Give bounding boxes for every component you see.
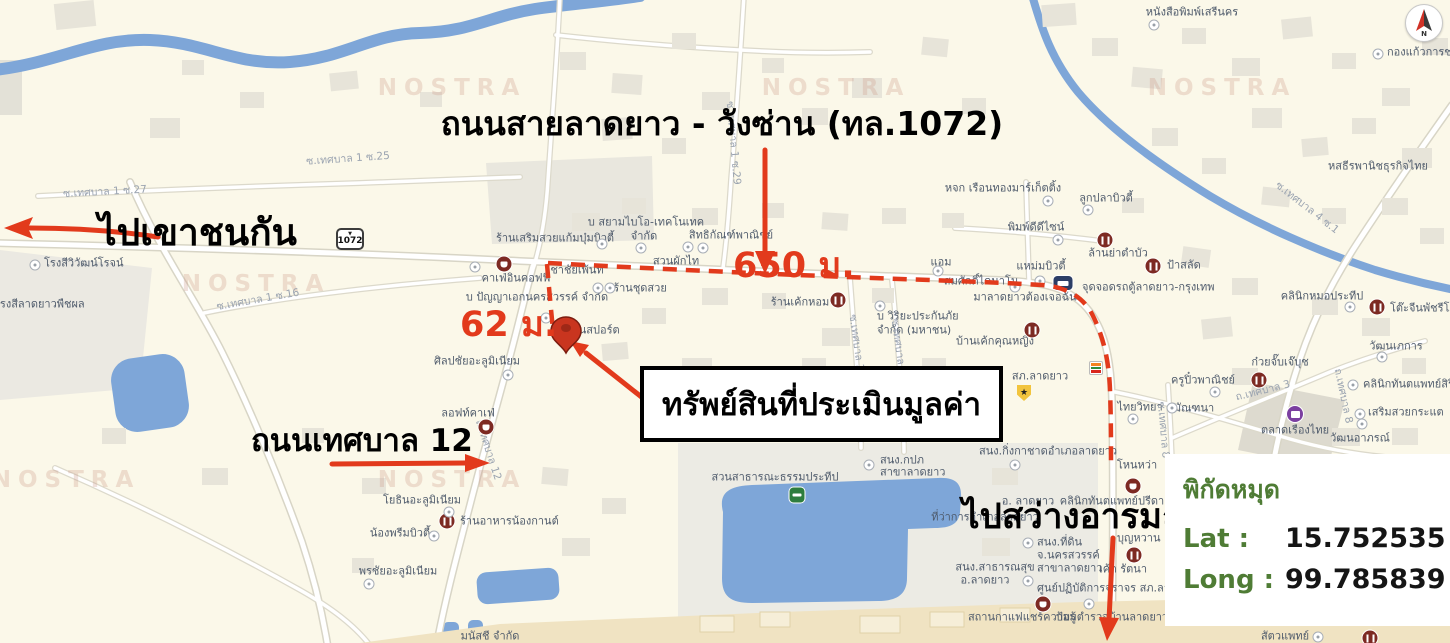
arrow-to-sawang-arom bbox=[1109, 538, 1113, 620]
restaurant-icon bbox=[1370, 300, 1385, 315]
dot-icon bbox=[1348, 380, 1359, 391]
poi-label: สถานกาแฟแชร์ความรู้ bbox=[968, 612, 1076, 623]
restaurant-icon bbox=[1252, 373, 1267, 388]
latitude-row: Lat : 15.752535 bbox=[1183, 523, 1450, 554]
poi-label: สวนสาธารณะธรรมประทีป bbox=[711, 472, 838, 483]
road-name-label: ซ.เทศบาล 8 bbox=[1155, 401, 1170, 458]
river bbox=[0, 0, 640, 70]
poi-label: สภ.ลาดยาว bbox=[1012, 371, 1068, 382]
poi-label: โรงสีลาดยาวพืชผล bbox=[0, 299, 85, 310]
poi-label: ตลาดเรืองไทย bbox=[1261, 425, 1329, 436]
poi-label: วัฒนอาภรณ์ bbox=[1330, 433, 1390, 444]
poi-label: เสริมสวยกระแต bbox=[1368, 407, 1444, 418]
dot-icon bbox=[864, 460, 875, 471]
dot-icon bbox=[698, 243, 709, 254]
poi-label: พิมพ์ดีดีไซน์ bbox=[1008, 222, 1065, 233]
nostra-watermark: NOSTRA bbox=[378, 467, 527, 493]
poi-label: สมศักดิ์ไดนาโม bbox=[944, 276, 1018, 287]
shop-icon bbox=[1287, 406, 1303, 422]
nostra-watermark: NOSTRA bbox=[1148, 75, 1297, 101]
coffee-icon bbox=[497, 257, 512, 272]
poi-label: จำกัด bbox=[631, 231, 657, 242]
poi-label: ป้าสลัด bbox=[1167, 260, 1201, 271]
poi-label: สวนผักไท bbox=[653, 256, 699, 267]
bus-icon bbox=[1054, 276, 1073, 290]
dot-icon bbox=[1010, 282, 1021, 293]
poi-label: ล้านย่าตำบัว bbox=[1088, 248, 1148, 259]
poi-label: สาขาลาดยาว bbox=[880, 467, 945, 478]
restaurant-icon bbox=[1127, 548, 1142, 563]
dot-icon bbox=[1023, 576, 1034, 587]
poi-label: มาลาดยาวต้องเจอฉัน bbox=[973, 292, 1076, 303]
poi-label: จำกัด (มหาชน) bbox=[877, 325, 951, 336]
long-label: Long : bbox=[1183, 565, 1285, 595]
dot-icon bbox=[364, 579, 375, 590]
poi-label: ชาชัยเพ้นท์ bbox=[550, 265, 603, 276]
poi-label: ก๋วยจั๊บเจ๊บุช bbox=[1251, 357, 1308, 368]
dot-icon bbox=[444, 507, 455, 518]
restaurant-icon bbox=[1363, 631, 1378, 643]
poi-label: บ้านเค้กคุณหญิง bbox=[956, 336, 1034, 347]
compass-n-letter: N bbox=[1421, 30, 1427, 38]
dot-icon bbox=[1149, 20, 1160, 31]
dot-icon bbox=[1377, 352, 1388, 363]
poi-label: บ วิริยะประกันภัย bbox=[877, 311, 959, 322]
road-name-label: ซ.เทศบาล 1 ซ.25 bbox=[306, 151, 390, 167]
poi-label: พรชัยอะลูมิเนียม bbox=[359, 566, 438, 577]
annotation-to-khao-chon-kan: ไปเขาชนกัน bbox=[98, 213, 297, 253]
poi-label: ร้านเสริมสวยแก้มบุ๋มบิวตี้ bbox=[496, 233, 614, 244]
canal bbox=[1032, 0, 1450, 290]
poi-label: โรงสีวิวัฒน์โรจน์ bbox=[44, 258, 124, 269]
nostra-watermark: NOSTRA bbox=[378, 75, 527, 101]
poi-label: จ.นครสวรรค์ bbox=[1037, 550, 1100, 561]
police-icon: ★ bbox=[1017, 385, 1031, 401]
dot-icon bbox=[1023, 538, 1034, 549]
restaurant-icon bbox=[440, 514, 455, 529]
poi-label: อ.ลาดยาว bbox=[961, 575, 1010, 586]
long-value: 99.785839 bbox=[1285, 564, 1446, 595]
poi-label: ร้านชุดสวย bbox=[613, 283, 667, 294]
annotation-to-sawang-arom: ไปสว่างอารมณ์ bbox=[962, 499, 1195, 537]
property-label-box: ทรัพย์สินที่ประเมินมูลค่า bbox=[640, 366, 1003, 442]
compass-north-icon: N bbox=[1405, 4, 1443, 42]
dot-icon bbox=[593, 283, 604, 294]
poi-label: ลอฟท์คาเฟ่ bbox=[441, 408, 494, 419]
poi-label: คลินิกทันตแพทย์สิริลักษณ์ bbox=[1363, 379, 1450, 390]
park-icon bbox=[790, 488, 805, 503]
poi-label: บ สยามไบโอ-เทคโนเทค bbox=[588, 217, 704, 228]
poi-label: วัฒนเภการ bbox=[1369, 341, 1422, 352]
road-name-label: ถ.เทศบาล 3 bbox=[1235, 379, 1292, 403]
poi-label: สนง.กิ่งกาชาดอำเภอลาดยาว bbox=[979, 446, 1117, 457]
lat-value: 15.752535 bbox=[1285, 523, 1446, 554]
restaurant-icon bbox=[1098, 233, 1113, 248]
poi-label: สัตวแพทย์ bbox=[1261, 631, 1309, 642]
poi-label: น้องพรีมบิวตี้ bbox=[370, 528, 430, 539]
coordinates-title: พิกัดหมุด bbox=[1183, 470, 1450, 510]
poi-label: โยธินอะลูมิเนียม bbox=[383, 495, 461, 506]
poi-label: หนังสือพิมพ์เสรีนคร bbox=[1146, 7, 1238, 18]
poi-label: สาขาลาดยาว bbox=[1037, 563, 1102, 574]
coffee-icon bbox=[1126, 479, 1141, 494]
poi-label: คลินิกหมอประทีป bbox=[1281, 291, 1363, 302]
poi-label: คาเฟ่อินคอฟฟี่ bbox=[482, 273, 551, 284]
dot-icon bbox=[1373, 49, 1384, 60]
poi-label: ไทยวิทยา bbox=[1117, 402, 1162, 413]
dot-icon bbox=[429, 531, 440, 542]
poi-label: เอ็นสปอร์ต bbox=[568, 325, 619, 336]
lat-label: Lat : bbox=[1183, 524, 1285, 554]
poi-label: ร้านอาหารน้องกานต์ bbox=[460, 516, 559, 527]
dot-icon bbox=[1010, 460, 1021, 471]
annotated-map: NOSTRANOSTRANOSTRANOSTRANOSTRANOSTRA หนั… bbox=[0, 0, 1450, 643]
poi-label: จุดจอดรถตู้ลาดยาว-กรุงเทพ bbox=[1082, 282, 1215, 293]
coffee-icon bbox=[1036, 597, 1051, 612]
seven-icon bbox=[1089, 361, 1103, 375]
coordinates-panel: พิกัดหมุด Lat : 15.752535 Long : 99.7858… bbox=[1165, 454, 1450, 626]
highway-shield-1072: ▼ 1072 bbox=[336, 228, 364, 250]
road-name-label: ซ.เทศบาล 4 ซ.1 bbox=[1273, 180, 1340, 236]
poi-label: มัณฑนา bbox=[1174, 403, 1214, 414]
poi-label: ครูปิ๋วพาณิชย์ bbox=[1171, 375, 1235, 386]
arrow-tesaban-12 bbox=[332, 463, 466, 464]
dot-icon bbox=[1167, 403, 1178, 414]
restaurant-icon bbox=[1146, 259, 1161, 274]
poi-label: โหนหว่า bbox=[1117, 460, 1157, 471]
poi-label: แหม่มบิวตี้ bbox=[1016, 261, 1065, 272]
poi-label: เค้ก รัตนา bbox=[1099, 564, 1147, 575]
annotation-road-title: ถนนสายลาดยาว - วังซ่าน (ทล.1072) bbox=[441, 106, 1004, 142]
dot-icon bbox=[875, 301, 886, 312]
dot-icon bbox=[605, 283, 616, 294]
dot-icon bbox=[470, 262, 481, 273]
dot-icon bbox=[597, 239, 608, 250]
distance-62m: 62 ม. bbox=[460, 297, 557, 352]
poi-label: มนัสชี จำกัด bbox=[461, 631, 520, 642]
poi-label: สนง.สาธารณสุข bbox=[955, 562, 1034, 573]
nostra-watermark: NOSTRA bbox=[0, 467, 140, 493]
dot-icon bbox=[503, 370, 514, 381]
dot-icon bbox=[1043, 196, 1054, 207]
dot-icon bbox=[1083, 205, 1094, 216]
road-name-label: ถ.เทศบาล 12 bbox=[473, 419, 502, 482]
dot-icon bbox=[1313, 632, 1324, 643]
dot-icon bbox=[1128, 414, 1139, 425]
dot-icon bbox=[30, 260, 41, 271]
poi-label: ศิลปชัยอะลูมิเนียม bbox=[434, 356, 520, 367]
dot-icon bbox=[683, 242, 694, 253]
dot-icon bbox=[1084, 599, 1095, 610]
longitude-row: Long : 99.785839 bbox=[1183, 564, 1450, 595]
dot-icon bbox=[1210, 387, 1221, 398]
dot-icon bbox=[1357, 419, 1368, 430]
arrow-property bbox=[586, 353, 644, 399]
restaurant-icon bbox=[831, 293, 846, 308]
nostra-watermark: NOSTRA bbox=[762, 75, 911, 101]
poi-label: ร้านเค้กหอม bbox=[771, 297, 830, 308]
poi-label: กองแก้วการช่าง bbox=[1387, 47, 1450, 58]
poi-label: สนง.ที่ดิน bbox=[1037, 537, 1082, 548]
dot-icon bbox=[636, 243, 647, 254]
coffee-icon bbox=[479, 420, 494, 435]
poi-label: หจก เรือนทองมาร์เก็ตติ้ง bbox=[945, 183, 1061, 194]
distance-650m: 650 ม. bbox=[733, 238, 855, 293]
poi-label: โต๊ะจีนพัชรีโภชนา bbox=[1390, 303, 1450, 314]
poi-label: หสธีรพานิชธุรกิจไทย bbox=[1328, 161, 1428, 172]
land-parcels bbox=[0, 60, 1345, 638]
poi-label: สนง.กปภ bbox=[880, 455, 924, 466]
poi-label: ป้อมตำรวจบ้านลาดยาว bbox=[1056, 612, 1168, 623]
dot-icon bbox=[1053, 235, 1064, 246]
road-name-label: ถ.เทศบาล 8 bbox=[1332, 368, 1354, 425]
poi-label: ลูกปลาบิวตี้ bbox=[1079, 193, 1133, 204]
nostra-watermark: NOSTRA bbox=[182, 271, 331, 297]
dot-icon bbox=[1035, 276, 1046, 287]
road-name-label: ซ.เทศบาล 1 ซ.27 bbox=[63, 185, 147, 200]
poi-label: แอม bbox=[931, 257, 952, 268]
road-name-label: ซ.เทศบาล 1 ซ.16 bbox=[216, 288, 300, 313]
shield-number: 1072 bbox=[337, 237, 362, 246]
restaurant-icon bbox=[1025, 323, 1040, 338]
dot-icon bbox=[1355, 409, 1366, 420]
annotation-road-tesaban-12: ถนนเทศบาล 12 bbox=[251, 425, 473, 458]
dot-icon bbox=[933, 266, 944, 277]
dot-icon bbox=[1345, 302, 1356, 313]
